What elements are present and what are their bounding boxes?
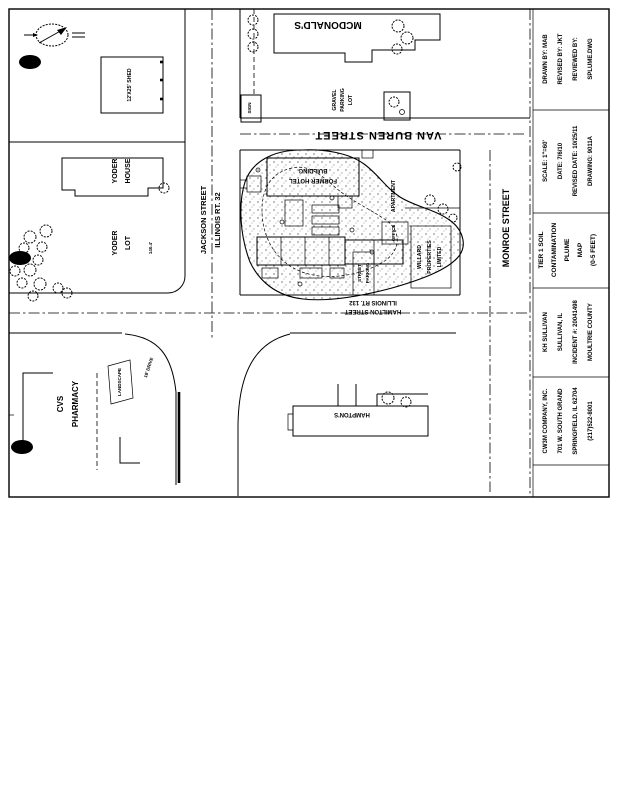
yoder-house-label1: YODER	[112, 159, 119, 184]
company-name-text: CW3M COMPANY, INC.	[543, 388, 549, 453]
landscape-label: LANDSCAPE	[117, 368, 122, 396]
monroe-street-label: MONROE STREET	[501, 188, 511, 267]
company-phone-text: (217)522-8001	[588, 401, 594, 441]
yoder-house-label2: HOUSE	[125, 158, 132, 183]
cvs-label2: PHARMACY	[71, 380, 80, 427]
cvs-label1: CVS	[56, 395, 65, 412]
sign-label: SIGN	[247, 102, 252, 113]
willard-label2: PROPERTIES	[427, 240, 433, 274]
company-city-text: SPRINGFIELD, IL 62704	[573, 387, 579, 455]
hotel-label2: BUILDING	[298, 167, 327, 173]
jackson-street-label: JACKSON STREET	[199, 185, 208, 254]
mcdonalds-label: MCDONALD'S	[294, 19, 362, 30]
office-label: OFFICE	[391, 225, 396, 242]
yoder-lot-label2: LOT	[125, 235, 132, 250]
map-title-line5: (0-5 FEET)	[590, 234, 597, 266]
yoder-lot-dimension: 140.4'	[148, 242, 153, 254]
site-city-text: SULLIVAN, IL	[558, 313, 564, 352]
revised-date-text: REVISED DATE: 10/25/11	[573, 125, 579, 196]
drawn-by-text: DRAWN BY: MAB	[543, 34, 549, 84]
tank-symbol	[11, 440, 33, 454]
hamptons-label: HAMPTON'S	[334, 411, 370, 417]
gravel-lot-label1: GRAVEL	[332, 89, 338, 111]
map-title-line1: TIER 1 SOIL	[538, 231, 545, 268]
reviewed-by-text: REVIEWED BY:	[573, 37, 579, 81]
county-text: MOULTRIE COUNTY	[588, 303, 594, 361]
street-parking-label1: STREET	[357, 264, 362, 282]
willard-label1: WILLARD	[417, 245, 423, 269]
drawing-sheet: DRAWN BY: MAB REVISED BY: JKT REVIEWED B…	[0, 0, 618, 800]
gravel-lot-label2: PARKING	[340, 88, 346, 112]
street-parking-label2: PARKING	[365, 262, 370, 283]
van-buren-street-label: VAN BUREN STREET	[314, 129, 441, 141]
hamilton-name-label: HAMILTON STREET	[344, 308, 401, 314]
incident-number-text: INCIDENT #: 20041498	[573, 299, 579, 363]
tank-symbol	[9, 251, 31, 265]
map-title-line4: MAP	[577, 242, 584, 257]
date-text: DATE: 7/6/10	[558, 142, 564, 179]
gravel-lot-label3: LOT	[348, 94, 354, 105]
dwg-file-text: SPLUME.DWG	[588, 38, 594, 80]
company-address-text: 701 W. SOUTH GRAND	[558, 388, 564, 454]
hotel-label1: FORMER HOTEL	[289, 177, 337, 183]
plume-map-svg: DRAWN BY: MAB REVISED BY: JKT REVIEWED B…	[0, 0, 618, 800]
apartment-label: APARTMENT	[391, 179, 397, 212]
map-title-line3: PLUME	[564, 238, 571, 261]
site-name-text: KH SULLIVAN	[543, 312, 549, 352]
map-title-line2: CONTAMINATION	[551, 223, 558, 278]
willard-label3: LIMITED	[437, 246, 443, 267]
shed-label: 12'X25' SHED	[127, 68, 133, 102]
scale-text: SCALE: 1"=60'	[543, 140, 549, 182]
jackson-route-label: ILLINOIS RT. 32	[213, 192, 222, 247]
revised-by-text: REVISED BY: JKT	[558, 33, 564, 84]
tank-symbol	[19, 55, 41, 69]
hamilton-route-label: ILLINOIS RT. 132	[349, 299, 397, 305]
yoder-lot-label1: YODER	[112, 231, 119, 256]
drawing-number-text: DRAWING: 9011A	[588, 135, 594, 186]
